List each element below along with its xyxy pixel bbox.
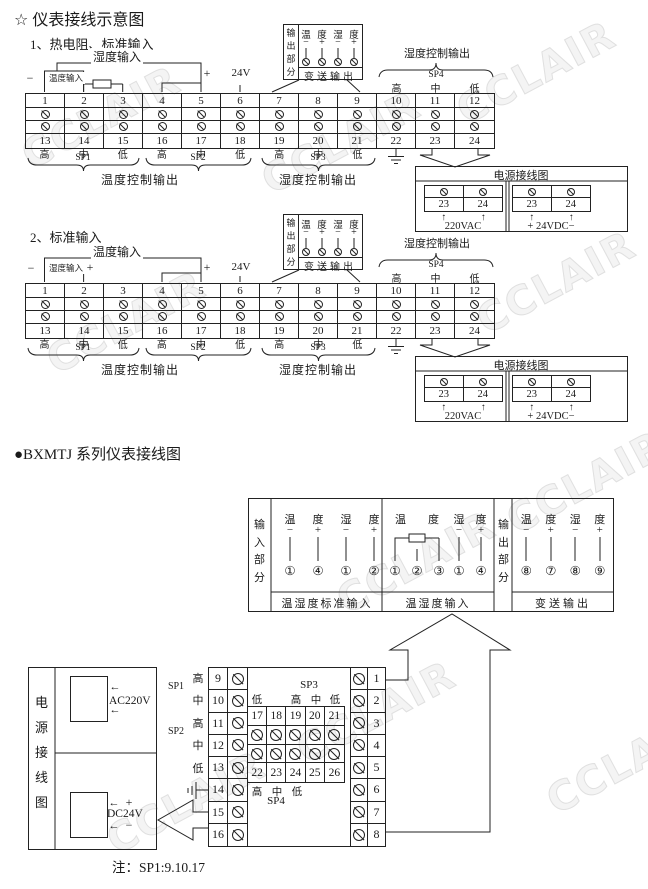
level-label: 低 bbox=[338, 146, 377, 161]
screw-terminal bbox=[267, 726, 286, 745]
screw-icon bbox=[353, 784, 365, 796]
panel3-label: 变送输出 bbox=[535, 595, 591, 611]
panel1-label: 温湿度标准输入 bbox=[282, 595, 373, 611]
watermark: CCLAIR bbox=[539, 702, 648, 824]
terminal-number: 24 bbox=[464, 388, 503, 401]
screw-terminal bbox=[464, 186, 503, 198]
output-part-label: 输出部分 bbox=[496, 517, 511, 587]
pin-number: ⑧ bbox=[563, 563, 588, 578]
terminal-number: 24 bbox=[552, 198, 591, 211]
screw-icon bbox=[440, 188, 448, 196]
screw-icon bbox=[232, 762, 244, 774]
screw-terminal bbox=[104, 121, 143, 134]
left-arrow-icon: ← bbox=[109, 820, 120, 832]
screw-terminal bbox=[228, 757, 247, 779]
screw-icon bbox=[314, 122, 323, 131]
screw-terminal bbox=[338, 121, 377, 134]
temp-input-label: 温度输入 bbox=[91, 243, 143, 260]
dc-power-label: + 24VDC− bbox=[527, 221, 574, 232]
screw-icon bbox=[392, 312, 401, 321]
power-wiring-title: 电源接线图 bbox=[494, 357, 549, 373]
pin-number: ⑧ bbox=[514, 563, 539, 578]
terminal-number: 12 bbox=[455, 284, 494, 298]
terminal-number: 7 bbox=[260, 94, 299, 108]
screw-terminal bbox=[221, 121, 260, 134]
screw-terminal bbox=[248, 745, 267, 764]
screw-terminal bbox=[351, 713, 368, 735]
level-label: 高 bbox=[260, 146, 299, 161]
screw-icon bbox=[158, 300, 167, 309]
humi-input-label: 湿度输入 bbox=[47, 262, 85, 274]
screw-terminal bbox=[416, 311, 455, 324]
screw-terminal bbox=[351, 757, 368, 779]
screw-icon bbox=[275, 300, 284, 309]
level-label: 高 bbox=[142, 336, 181, 351]
screw-icon bbox=[353, 717, 365, 729]
screw-terminal bbox=[455, 108, 494, 121]
screw-icon bbox=[440, 378, 448, 386]
screw-icon bbox=[353, 122, 362, 131]
screw-icon bbox=[275, 110, 284, 119]
sp4-label: SP4 bbox=[428, 70, 443, 80]
level-label: 高 bbox=[25, 146, 64, 161]
terminal-number: 15 bbox=[209, 802, 228, 824]
sp3-label: SP3 bbox=[310, 343, 325, 353]
terminal-number: 2 bbox=[65, 284, 104, 298]
transmit-output-label: 变送输出 bbox=[298, 258, 362, 273]
terminal-number: 5 bbox=[182, 284, 221, 298]
screw-icon bbox=[392, 110, 401, 119]
screw-icon bbox=[270, 729, 282, 741]
level-label: 低 bbox=[292, 784, 303, 799]
level-label: 中 bbox=[416, 270, 455, 285]
power-wiring-title: 电源接线图 bbox=[494, 167, 549, 183]
terminal-number: 23 bbox=[425, 198, 464, 211]
pin-number: ⑦ bbox=[539, 563, 564, 578]
plus-sign: + bbox=[87, 260, 94, 275]
screw-icon bbox=[470, 122, 479, 131]
screw-terminal bbox=[26, 311, 65, 324]
terminal-number: 13 bbox=[209, 757, 228, 779]
screw-icon bbox=[334, 58, 342, 66]
output-part-label: 输出部分 bbox=[284, 26, 298, 78]
screw-terminal bbox=[228, 713, 247, 735]
screw-icon bbox=[392, 300, 401, 309]
screw-icon bbox=[197, 312, 206, 321]
level-label: 低 bbox=[103, 146, 142, 161]
pin-number: ④ bbox=[470, 563, 492, 578]
screw-icon bbox=[41, 122, 50, 131]
screw-icon bbox=[158, 312, 167, 321]
screw-terminal bbox=[351, 690, 368, 712]
screw-terminal bbox=[351, 779, 368, 801]
screw-terminal bbox=[65, 108, 104, 121]
humi-input-label: 湿度输入 bbox=[91, 48, 143, 65]
terminal-number: 6 bbox=[368, 779, 385, 801]
polarity-sign: − bbox=[448, 524, 470, 536]
screw-terminal bbox=[455, 311, 494, 324]
screw-terminal bbox=[298, 248, 314, 256]
pin-number: ④ bbox=[304, 563, 332, 578]
terminal-number: 9 bbox=[209, 668, 228, 690]
screw-icon bbox=[431, 122, 440, 131]
screw-terminal bbox=[325, 726, 344, 745]
polarity-sign: + bbox=[470, 524, 492, 536]
pin-number: ① bbox=[276, 563, 304, 578]
screw-terminal bbox=[298, 58, 314, 66]
minus-sign: − bbox=[27, 71, 34, 86]
screw-terminal bbox=[26, 108, 65, 121]
terminal-number: 1 bbox=[368, 668, 385, 690]
screw-icon bbox=[119, 122, 128, 131]
terminal-number: 18 bbox=[267, 707, 286, 726]
screw-terminal bbox=[552, 376, 591, 388]
screw-icon bbox=[528, 188, 536, 196]
screw-terminal bbox=[143, 311, 182, 324]
panel2-label: 温湿度输入 bbox=[406, 595, 471, 611]
level-label: 高 bbox=[193, 670, 204, 686]
level-label: 低 bbox=[455, 270, 494, 285]
screw-icon bbox=[431, 312, 440, 321]
sp1-label: SP1 bbox=[75, 153, 90, 163]
screw-icon bbox=[232, 695, 244, 707]
screw-icon bbox=[80, 300, 89, 309]
screw-terminal bbox=[143, 108, 182, 121]
ac-power-label: 220VAC bbox=[445, 411, 482, 422]
screw-icon bbox=[236, 122, 245, 131]
polarity-sign: + bbox=[314, 227, 330, 238]
level-label: 中 bbox=[193, 737, 204, 753]
terminal-number: 10 bbox=[377, 284, 416, 298]
screw-icon bbox=[314, 300, 323, 309]
level-label: 高 bbox=[193, 715, 204, 731]
level-label: 低 bbox=[103, 336, 142, 351]
humi-ctrl-output-label: 湿度控制输出 bbox=[404, 235, 470, 251]
terminal-number: 22 bbox=[377, 324, 416, 338]
screw-icon bbox=[197, 110, 206, 119]
ac-power-label: AC220V bbox=[109, 695, 151, 707]
screw-icon bbox=[470, 312, 479, 321]
screw-terminal bbox=[104, 298, 143, 311]
terminal-number: 23 bbox=[416, 324, 455, 338]
terminal-number: 11 bbox=[416, 94, 455, 108]
terminal-number: 7 bbox=[260, 284, 299, 298]
screw-terminal bbox=[228, 690, 247, 712]
screw-icon bbox=[309, 729, 321, 741]
terminal-number: 24 bbox=[464, 198, 503, 211]
screw-icon bbox=[119, 312, 128, 321]
screw-terminal bbox=[455, 121, 494, 134]
screw-icon bbox=[251, 748, 263, 760]
screw-terminal bbox=[286, 726, 305, 745]
screw-icon bbox=[392, 122, 401, 131]
terminal-number: 24 bbox=[286, 763, 305, 782]
plus-sign: + bbox=[204, 66, 211, 81]
polarity-sign: + bbox=[314, 37, 330, 48]
level-label: 高 bbox=[291, 692, 302, 707]
level-label: 低 bbox=[221, 146, 260, 161]
terminal-number: 5 bbox=[182, 94, 221, 108]
screw-terminal bbox=[26, 298, 65, 311]
manual-page: CCLAIRCCLAIRCCLAIRCCLAIRCCLAIRCCLAIRCCLA… bbox=[0, 0, 648, 889]
transmit-output-callout: 输出部分 温度湿度 −+−+ 变送输出 bbox=[283, 214, 363, 270]
level-label: 低 bbox=[338, 336, 377, 351]
screw-icon bbox=[232, 717, 244, 729]
temp-ctrl-output-label: 温度控制输出 bbox=[101, 171, 179, 188]
sp4-label: SP4 bbox=[428, 260, 443, 270]
screw-terminal bbox=[228, 779, 247, 801]
level-label: 中 bbox=[416, 80, 455, 95]
screw-terminal bbox=[221, 108, 260, 121]
screw-icon bbox=[353, 762, 365, 774]
terminal-number: 25 bbox=[306, 763, 325, 782]
sp2-label: SP2 bbox=[168, 726, 184, 737]
output-part-label: 输出部分 bbox=[284, 216, 298, 268]
screw-icon bbox=[567, 378, 575, 386]
screw-terminal bbox=[104, 311, 143, 324]
screw-icon bbox=[197, 122, 206, 131]
screw-terminal bbox=[351, 824, 368, 846]
screw-terminal bbox=[330, 58, 346, 66]
screw-icon bbox=[479, 188, 487, 196]
power-wiring-title: 电源接线图 bbox=[33, 690, 50, 815]
screw-icon bbox=[318, 248, 326, 256]
screw-icon bbox=[289, 729, 301, 741]
screw-icon bbox=[350, 58, 358, 66]
polarity-sign: + bbox=[588, 524, 613, 536]
screw-terminal bbox=[338, 108, 377, 121]
terminal-number: 12 bbox=[455, 94, 494, 108]
screw-terminal bbox=[314, 248, 330, 256]
screw-terminal bbox=[351, 802, 368, 824]
terminal-number: 23 bbox=[425, 388, 464, 401]
screw-icon bbox=[353, 829, 365, 841]
screw-terminal bbox=[143, 121, 182, 134]
temp-ctrl-output-label: 温度控制输出 bbox=[101, 361, 179, 378]
screw-icon bbox=[232, 673, 244, 685]
screw-icon bbox=[232, 784, 244, 796]
terminal-number: 10 bbox=[209, 690, 228, 712]
sp2-label: SP2 bbox=[190, 153, 205, 163]
terminal-number: 6 bbox=[221, 94, 260, 108]
terminal-number: 4 bbox=[143, 94, 182, 108]
screw-icon bbox=[328, 748, 340, 760]
screw-icon bbox=[470, 300, 479, 309]
footnote: 注：SP1:9.10.17 bbox=[112, 856, 205, 876]
screw-icon bbox=[275, 122, 284, 131]
terminal-number: 10 bbox=[377, 94, 416, 108]
level-label: 高 bbox=[377, 270, 416, 285]
screw-icon bbox=[328, 729, 340, 741]
screw-icon bbox=[479, 378, 487, 386]
terminal-number: 6 bbox=[221, 284, 260, 298]
screw-icon bbox=[431, 300, 440, 309]
polarity-sign: + bbox=[346, 37, 362, 48]
24v-label: 24V bbox=[232, 67, 251, 79]
screw-terminal bbox=[464, 376, 503, 388]
screw-terminal bbox=[221, 298, 260, 311]
terminal-number: 26 bbox=[325, 763, 344, 782]
screw-terminal bbox=[182, 311, 221, 324]
screw-terminal bbox=[182, 298, 221, 311]
left-arrow-icon: ← bbox=[110, 681, 121, 693]
screw-icon bbox=[275, 312, 284, 321]
screw-terminal bbox=[260, 298, 299, 311]
screw-icon bbox=[314, 110, 323, 119]
terminal-number: 9 bbox=[338, 284, 377, 298]
screw-terminal bbox=[228, 735, 247, 757]
screw-icon bbox=[528, 378, 536, 386]
screw-icon bbox=[353, 739, 365, 751]
level-label: 中 bbox=[193, 692, 204, 708]
screw-terminal bbox=[416, 121, 455, 134]
screw-terminal bbox=[351, 668, 368, 690]
level-label: 低 bbox=[330, 692, 341, 707]
screw-icon bbox=[232, 806, 244, 818]
polarity-sign: + bbox=[304, 524, 332, 536]
screw-terminal bbox=[377, 121, 416, 134]
screw-icon bbox=[119, 300, 128, 309]
polarity-sign: − bbox=[563, 524, 588, 536]
screw-icon bbox=[197, 300, 206, 309]
screw-terminal bbox=[416, 298, 455, 311]
humi-ctrl-output-label: 湿度控制输出 bbox=[279, 171, 357, 188]
screw-terminal bbox=[26, 121, 65, 134]
sp1-label: SP1 bbox=[168, 681, 184, 692]
signal-header: 温 bbox=[384, 511, 417, 527]
screw-terminal bbox=[346, 58, 362, 66]
level-label: 中 bbox=[272, 784, 283, 799]
terminal-number: 21 bbox=[325, 707, 344, 726]
sp2-label: SP2 bbox=[190, 343, 205, 353]
screw-icon bbox=[232, 739, 244, 751]
screw-terminal bbox=[299, 121, 338, 134]
polarity-sign: + bbox=[539, 524, 564, 536]
humi-ctrl-output-label: 湿度控制输出 bbox=[404, 45, 470, 61]
level-label: 低 bbox=[455, 80, 494, 95]
screw-terminal bbox=[425, 376, 464, 388]
screw-icon bbox=[289, 748, 301, 760]
24v-label: 24V bbox=[232, 261, 251, 273]
terminal-number: 22 bbox=[248, 763, 267, 782]
screw-terminal bbox=[143, 298, 182, 311]
level-label: 高 bbox=[25, 336, 64, 351]
terminal-number: 22 bbox=[377, 134, 416, 148]
terminal-number: 23 bbox=[416, 134, 455, 148]
screw-terminal bbox=[513, 186, 552, 198]
screw-icon bbox=[353, 300, 362, 309]
terminal-number: 16 bbox=[209, 824, 228, 846]
terminal-number: 24 bbox=[552, 388, 591, 401]
screw-icon bbox=[431, 110, 440, 119]
screw-terminal bbox=[299, 108, 338, 121]
screw-terminal bbox=[65, 311, 104, 324]
polarity-sign: − bbox=[276, 524, 304, 536]
screw-terminal bbox=[228, 824, 247, 846]
screw-icon bbox=[350, 248, 358, 256]
screw-icon bbox=[567, 188, 575, 196]
terminal-number: 17 bbox=[248, 707, 267, 726]
screw-icon bbox=[80, 122, 89, 131]
input-part-label: 输入部分 bbox=[249, 517, 270, 587]
terminal-number: 11 bbox=[209, 713, 228, 735]
screw-terminal bbox=[513, 376, 552, 388]
level-label: 低 bbox=[221, 336, 260, 351]
watermark: CCLAIR bbox=[469, 222, 643, 344]
screw-terminal bbox=[299, 298, 338, 311]
screw-terminal bbox=[314, 58, 330, 66]
screw-terminal bbox=[455, 298, 494, 311]
signal-header: 度 bbox=[417, 511, 450, 527]
polarity-sign: − bbox=[514, 524, 539, 536]
screw-icon bbox=[41, 300, 50, 309]
pin-number: ② bbox=[406, 563, 428, 578]
terminal-number: 4 bbox=[143, 284, 182, 298]
terminal-number: 3 bbox=[104, 284, 143, 298]
terminal-number: 14 bbox=[209, 779, 228, 801]
polarity-sign: − bbox=[332, 524, 360, 536]
screw-icon bbox=[236, 312, 245, 321]
screw-terminal bbox=[425, 186, 464, 198]
screw-icon bbox=[353, 312, 362, 321]
terminal-number: 20 bbox=[306, 707, 325, 726]
polarity-sign: − bbox=[298, 37, 314, 48]
screw-icon bbox=[318, 58, 326, 66]
minus-sign: − bbox=[28, 261, 35, 276]
screw-icon bbox=[353, 695, 365, 707]
screw-terminal bbox=[260, 311, 299, 324]
screw-icon bbox=[353, 673, 365, 685]
terminal-number: 1 bbox=[26, 94, 65, 108]
screw-terminal bbox=[416, 108, 455, 121]
level-label: 高 bbox=[377, 80, 416, 95]
screw-terminal bbox=[248, 726, 267, 745]
screw-icon bbox=[302, 248, 310, 256]
screw-terminal bbox=[299, 311, 338, 324]
screw-terminal bbox=[104, 108, 143, 121]
terminal-number: 9 bbox=[338, 94, 377, 108]
terminal-number: 23 bbox=[513, 198, 552, 211]
sp3-label: SP3 bbox=[300, 679, 318, 691]
terminal-number: 2 bbox=[65, 94, 104, 108]
minus-sign: − bbox=[126, 818, 133, 833]
humi-ctrl-output-label: 湿度控制输出 bbox=[279, 361, 357, 378]
terminal-number: 3 bbox=[104, 94, 143, 108]
screw-icon bbox=[232, 829, 244, 841]
transmit-output-callout: 输出部分 温度湿度 −+−+ 变送输出 bbox=[283, 24, 363, 80]
terminal-number: 8 bbox=[299, 284, 338, 298]
terminal-number: 7 bbox=[368, 802, 385, 824]
screw-terminal bbox=[260, 121, 299, 134]
page-title: ☆ 仪表接线示意图 bbox=[14, 6, 144, 30]
terminal-number: 23 bbox=[267, 763, 286, 782]
level-label: 低 bbox=[252, 692, 263, 707]
screw-terminal bbox=[65, 298, 104, 311]
screw-terminal bbox=[267, 745, 286, 764]
screw-terminal bbox=[228, 668, 247, 690]
screw-icon bbox=[80, 110, 89, 119]
polarity-sign: + bbox=[346, 227, 362, 238]
pin-number: ③ bbox=[428, 563, 450, 578]
screw-terminal bbox=[346, 248, 362, 256]
terminal-number: 24 bbox=[455, 134, 494, 148]
screw-icon bbox=[41, 110, 50, 119]
plus-sign: + bbox=[204, 260, 211, 275]
terminal-number: 11 bbox=[416, 284, 455, 298]
screw-terminal bbox=[351, 735, 368, 757]
sp3-label: SP3 bbox=[310, 153, 325, 163]
screw-terminal bbox=[65, 121, 104, 134]
